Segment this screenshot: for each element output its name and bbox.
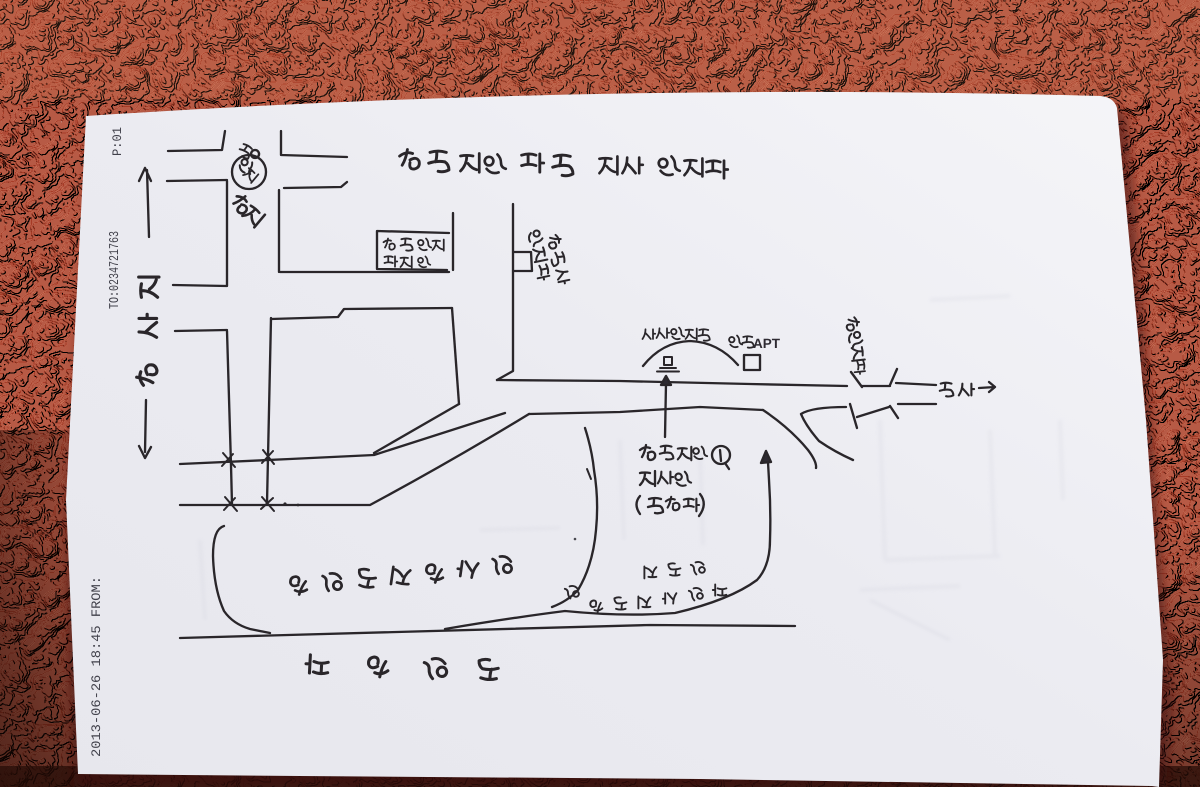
- svg-text:2013-06-26 18:45 FROM:: 2013-06-26 18:45 FROM:: [89, 576, 104, 757]
- svg-text:APT: APT: [753, 336, 781, 351]
- svg-text:P:01: P:01: [110, 127, 125, 156]
- svg-text:TO:0234721763: TO:0234721763: [108, 231, 123, 309]
